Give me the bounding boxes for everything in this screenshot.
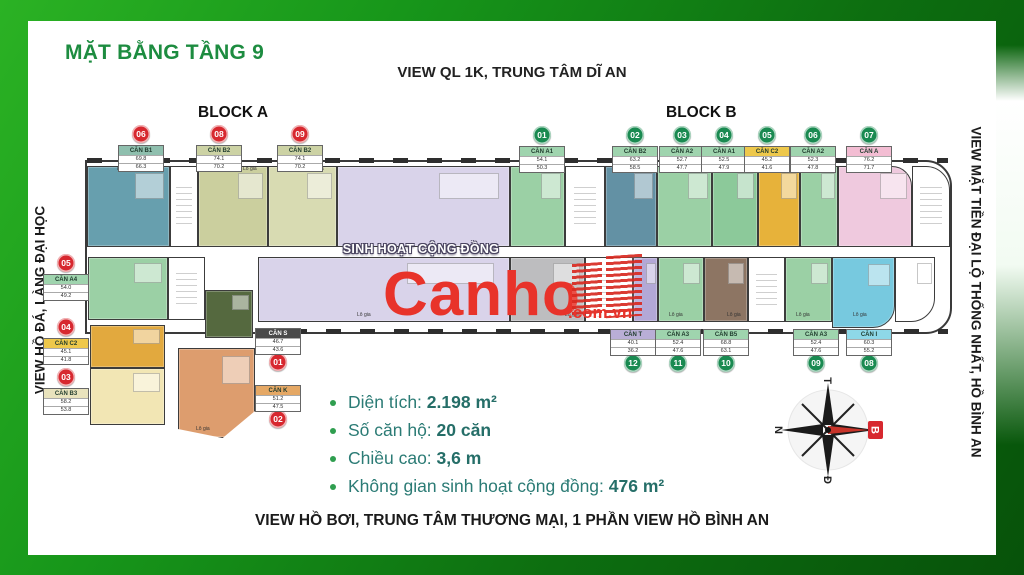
unit-wing-paleyellow-unit [90,368,165,425]
unit-label-b03: CĂN A252.747.7 [659,146,705,173]
unit-label-b01: CĂN A154.150.3 [519,146,565,173]
loggia-label: Lô gia [727,313,741,318]
loggia-label: Lô gia [669,313,683,318]
unit-label-l04: CĂN C245.141.8 [43,338,89,365]
unit-badge-bb09: 09 [807,354,825,372]
unit-label-b06: CĂN A252.347.8 [790,146,836,173]
unit-end-bottom [895,257,935,322]
community-area-label: SINH HOẠT CỘNG ĐỒNG [336,242,506,256]
unit-label-wl02: CĂN K51.247.5 [255,385,301,412]
stat-item: Diện tích: 2.198 m² [325,392,664,414]
unit-badge-b05: 05 [758,126,776,144]
unit-brown-unit [704,257,748,322]
unit-label-bb08: CĂN I60.355.2 [846,329,892,356]
stats-list: Diện tích: 2.198 m²Số căn hộ: 20 cănChiề… [325,392,664,504]
unit-khaki-unit-2 [268,166,337,247]
unit-label-l05: CĂN A454.049.2 [43,274,89,301]
unit-label-l03: CĂN B358.253.8 [43,388,89,415]
unit-stair-b [748,257,785,322]
unit-green-unit-b1 [510,166,565,247]
unit-core-b [565,166,605,247]
unit-label-bb10: CĂN B568.863.1 [703,329,749,356]
unit-label-a08: CĂN B274.170.2 [196,145,242,172]
unit-badge-a09: 09 [291,125,309,143]
stat-item: Chiều cao: 3,6 m [325,448,664,470]
compass-west-letter: T [821,377,833,384]
unit-steelblue-unit [605,166,657,247]
loggia-label: Lô gia [853,313,867,318]
unit-badge-l03: 03 [57,368,75,386]
unit-khaki-unit-1 [198,166,268,247]
loggia-label: Lô gia [243,167,257,172]
unit-badge-bb10: 10 [717,354,735,372]
unit-badge-bb11: 11 [669,354,687,372]
unit-badge-l04: 04 [57,318,75,336]
unit-label-bb09: CĂN A352.447.6 [793,329,839,356]
unit-badge-bb12: 12 [624,354,642,372]
unit-wing-salmon-unit [178,348,255,438]
unit-gold-unit-b [758,166,800,247]
compass-north-letter: B [869,426,881,434]
unit-green-unit-b3 [712,166,758,247]
unit-label-b02: CĂN B263.258.5 [612,146,658,173]
stat-item: Không gian sinh hoạt cộng đồng: 476 m² [325,476,664,498]
watermark-brand: Canho [383,264,581,326]
unit-badge-wl02: 02 [269,410,287,428]
unit-label-bb11: CĂN A352.447.6 [655,329,701,356]
unit-badge-b07: 07 [860,126,878,144]
unit-badge-b04: 04 [715,126,733,144]
unit-badge-b01: 01 [533,126,551,144]
unit-label-a06: CĂN B169.866.3 [118,145,164,172]
unit-pink-unit [838,166,912,247]
poster-canvas: MẶT BẰNG TẦNG 9 VIEW QL 1K, TRUNG TÂM DĨ… [0,0,1024,575]
unit-wing-core [168,257,205,320]
compass-rose: B Đ N T [773,375,883,485]
loggia-label: Lô gia [196,427,210,432]
loggia-label: Lô gia [357,313,371,318]
unit-wing-gold-unit [90,325,165,368]
unit-wing-green-unit [88,257,168,320]
unit-badge-a08: 08 [210,125,228,143]
unit-label-b04: CĂN A152.547.9 [701,146,747,173]
unit-green-unit-b4 [800,166,838,247]
unit-badge-b03: 03 [673,126,691,144]
watermark-suffix: .com.vn [568,303,632,323]
unit-darkgreen-unit [205,290,253,338]
unit-label-b05: CĂN C245.241.6 [744,146,790,173]
unit-teal-unit [87,166,170,247]
unit-end-top [912,166,950,247]
unit-community-top [337,166,510,247]
unit-badge-b06: 06 [804,126,822,144]
stat-item: Số căn hộ: 20 căn [325,420,664,442]
unit-core [170,166,198,247]
unit-badge-l05: 05 [57,254,75,272]
unit-green-unit-b2 [657,166,712,247]
compass-south-letter: N [773,426,784,434]
unit-label-bb12: CĂN T40.136.2 [610,329,656,356]
unit-badge-wl01: 01 [269,353,287,371]
loggia-label: Lô gia [796,313,810,318]
unit-label-a09: CĂN B274.170.2 [277,145,323,172]
unit-label-b07: CĂN A76.271.7 [846,146,892,173]
unit-badge-bb08: 08 [860,354,878,372]
compass-east-letter: Đ [821,476,833,484]
unit-badge-b02: 02 [626,126,644,144]
unit-label-wl01: CĂN S46.743.6 [255,328,301,355]
unit-badge-a06: 06 [132,125,150,143]
